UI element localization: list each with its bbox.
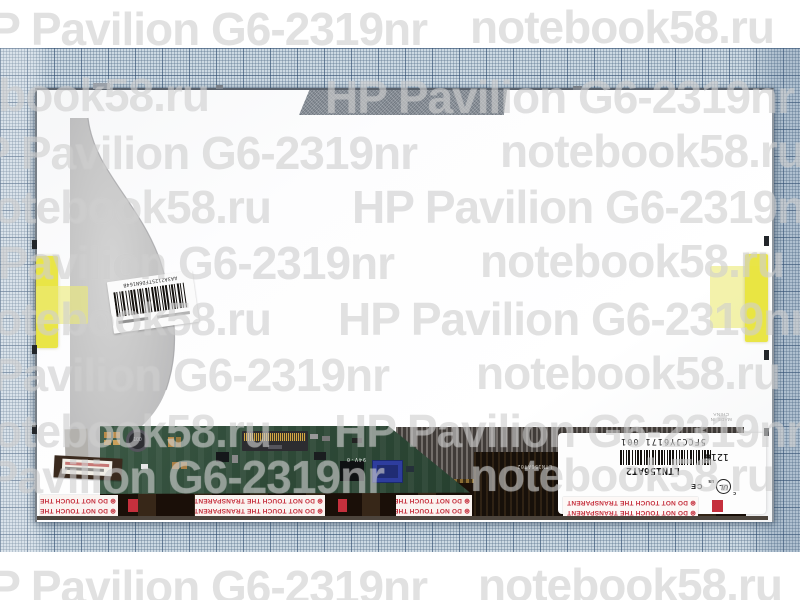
warning-text-row: ⊛DO NOT TOUCH THE TRANSPARENT (195, 495, 325, 505)
ul-logo: UL (716, 480, 731, 495)
mounting-tab (216, 85, 223, 89)
timing-controller-chip (340, 461, 364, 481)
red-seal-mark (338, 499, 347, 512)
warning-text-row: ⊛DO NOT TOUCH THE TRANSPARENT (396, 505, 472, 515)
capacitor (181, 462, 187, 469)
kapton-tape-right-vertical (745, 254, 768, 342)
watermark-text: HP Pavilion G6-2319nr (0, 560, 427, 600)
warning-sticker: ⊛DO NOT TOUCH THE TRANSPARENT ⊛DO NOT TO… (396, 495, 472, 517)
capacitor (113, 432, 120, 438)
panel-bottom-edge (37, 516, 768, 520)
warning-sticker: ⊛DO NOT TOUCH THE TRANSPARENT ⊛DO NOT TO… (40, 495, 118, 517)
flex-cable (53, 455, 122, 481)
barcode-sticker-microtext (157, 311, 190, 319)
capacitor (113, 440, 120, 445)
label-serial-number: 5FCCJY6171 001 (600, 436, 726, 446)
warning-text-row: ⊛DO NOT TOUCH THE TRANSPARENT (40, 495, 118, 505)
warning-text-row: ⊛DO NOT TOUCH THE TRANSPARENT (563, 497, 698, 507)
mounting-tab (93, 83, 110, 89)
ce-mark: CE (690, 483, 702, 492)
made-in-stamp: MADE IN CHINA (704, 412, 738, 422)
smd-part (310, 434, 318, 439)
smd-part (141, 464, 148, 469)
capacitor (104, 440, 111, 445)
capacitor (104, 432, 111, 438)
ul-mark-c: c (733, 490, 736, 496)
label-date-code: 1216 (701, 451, 733, 462)
smd-part (232, 455, 238, 463)
certification-marks: c UL us CE (684, 478, 736, 496)
product-photo-lcd-panel: AA3A2125TFD6N164B 100 94V-0 LTN156AT02 (0, 0, 800, 600)
screw-hole-left (32, 240, 37, 249)
pcb-silkscreen-text: 94V-0 (296, 456, 366, 462)
flex-label-microtext (65, 467, 104, 472)
capacitor (168, 437, 174, 447)
screw-hole-right (764, 350, 769, 360)
mounting-tab (573, 86, 582, 90)
cof-chip-marking: LTN156AT02 (476, 463, 552, 469)
foil-sticker-top (299, 90, 507, 115)
label-model-number: LTN156AT2 (613, 465, 693, 476)
warning-text-row: ⊛DO NOT TOUCH THE TRANSPARENT (396, 495, 472, 505)
ic-chip (216, 452, 229, 462)
watermark-text: notebook58.ru (470, 0, 774, 54)
kapton-tape-left-horizontal (36, 286, 88, 324)
warning-sticker: ⊛DO NOT TOUCH THE TRANSPARENT ⊛DO NOT TO… (195, 495, 325, 517)
inductor: 100 (126, 429, 149, 452)
capacitor (176, 437, 181, 447)
red-seal-mark (128, 499, 138, 512)
screw-hole-right (764, 428, 769, 436)
ul-mark-us: us (708, 478, 714, 484)
backlight-connector (372, 460, 403, 483)
capacitor (172, 462, 179, 469)
watermark-text: notebook58.ru (478, 558, 782, 600)
resistor (352, 438, 362, 443)
lvds-connector-slot (268, 445, 282, 449)
smd-part (322, 436, 330, 441)
red-seal-mark (712, 500, 723, 512)
warning-text-row: ⊛DO NOT TOUCH THE TRANSPARENT (195, 505, 325, 515)
label-barcode (620, 450, 714, 465)
smd-part (406, 466, 414, 472)
lvds-connector-pins (244, 433, 306, 441)
screw-hole-left (32, 425, 37, 434)
warning-text-row: ⊛DO NOT TOUCH THE TRANSPARENT (40, 505, 118, 515)
cof-heatsink-block (474, 452, 558, 516)
screw-hole-left (32, 345, 37, 354)
screw-hole-right (764, 236, 769, 246)
flex-cable-label (62, 459, 113, 477)
lvds-connector (242, 431, 308, 451)
barcode-sticker-microtext (118, 317, 148, 324)
inductor-marking: 100 (133, 437, 141, 443)
